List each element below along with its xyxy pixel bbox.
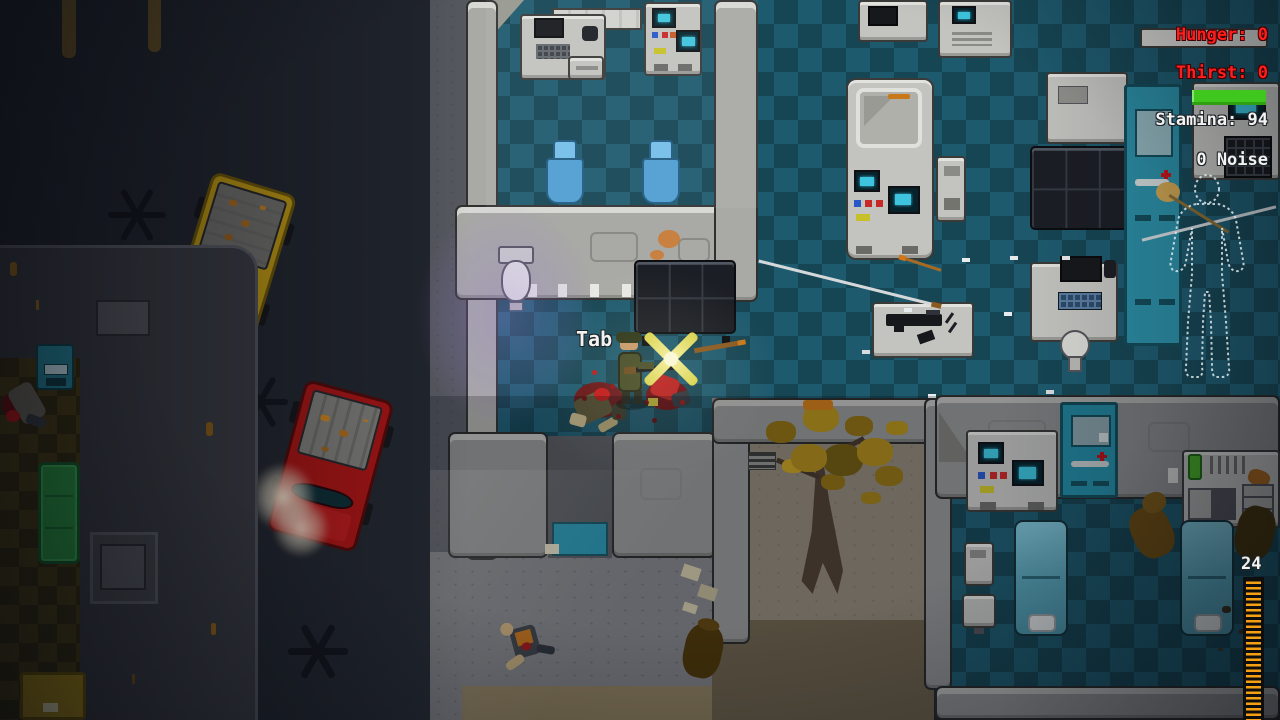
med-feet	[980, 502, 996, 510]
monitor-icon	[1060, 256, 1102, 282]
paper	[43, 703, 58, 712]
ammo-count: 24	[1241, 554, 1261, 574]
console-vent	[654, 64, 668, 71]
orange-item[interactable]	[803, 400, 833, 410]
wall-panel	[640, 468, 682, 500]
noise-label: 0 Noise	[1196, 150, 1268, 170]
green-couch[interactable]	[38, 462, 80, 564]
scanner-screen	[888, 186, 920, 214]
red-cross-icon	[1100, 452, 1104, 461]
caltrop-debris	[288, 616, 348, 686]
doorway[interactable]	[548, 436, 612, 558]
small-device[interactable]	[936, 156, 966, 222]
top-machine[interactable]	[938, 0, 1012, 58]
door-vent	[1071, 481, 1087, 486]
game-viewport[interactable]: Hunger: 0 Thirst: 0 Stamina: 94 0 Noise …	[0, 0, 1280, 720]
wall-office-east	[714, 0, 758, 302]
hospital-bed[interactable]	[1180, 520, 1234, 636]
scanner-screen	[854, 170, 880, 192]
toilet[interactable]	[496, 246, 538, 314]
bullet-casings	[962, 258, 970, 262]
office-chair[interactable]	[1058, 330, 1092, 374]
workbench[interactable]	[872, 302, 974, 358]
keyboard	[1058, 292, 1102, 310]
tall-machine[interactable]	[1046, 72, 1128, 144]
iv-trolley[interactable]	[960, 542, 1000, 634]
machine-screen	[952, 6, 976, 24]
monitor-icon	[868, 6, 898, 26]
machine-panel	[1058, 86, 1088, 104]
med-buttons	[978, 472, 985, 479]
med-screen	[1012, 460, 1044, 486]
teal-door[interactable]	[552, 522, 608, 556]
ammo-bar	[1243, 577, 1264, 720]
corpse[interactable]	[0, 380, 52, 442]
yellow-table[interactable]	[20, 672, 86, 720]
player-legs	[622, 390, 630, 404]
caltrop-debris	[108, 182, 166, 248]
green-bottle[interactable]	[1188, 454, 1202, 480]
thirst-label: Thirst: 0	[1176, 63, 1268, 83]
bed-pillow	[1028, 614, 1056, 632]
fridge-vent	[1135, 215, 1151, 221]
wall-medroom-south	[935, 686, 1280, 720]
tire-streak	[62, 0, 76, 58]
tree-foliage	[791, 444, 827, 472]
wall-mid-south-left	[448, 432, 548, 558]
tree	[745, 398, 935, 628]
cabinet-doors	[1188, 488, 1236, 520]
scanner-machine[interactable]	[846, 78, 934, 260]
tire-streak	[148, 0, 161, 52]
keyboard	[536, 44, 570, 59]
scanner-feet	[856, 246, 872, 254]
scanner-window	[856, 88, 922, 148]
baseboard-mark	[1168, 468, 1178, 483]
scanner-label	[856, 214, 870, 221]
hospital-bed[interactable]	[1014, 520, 1068, 636]
player-shadow	[616, 398, 648, 410]
key-prompt: Tab	[576, 327, 612, 351]
console-buttons	[652, 32, 658, 38]
wall-panel	[1148, 422, 1190, 452]
hunger-label: Hunger: 0	[1176, 25, 1268, 45]
desk-item	[1104, 260, 1116, 278]
paper[interactable]	[545, 544, 559, 554]
console-label	[654, 48, 666, 54]
lab-console[interactable]	[644, 2, 702, 76]
floor-debris	[1222, 606, 1231, 613]
med-label	[980, 486, 994, 493]
top-desk[interactable]	[858, 0, 928, 42]
tool-marks	[945, 312, 954, 324]
microscope	[582, 26, 598, 41]
tree-trunk	[797, 464, 843, 594]
machine-vent	[952, 32, 992, 46]
dark-couch[interactable]	[1030, 146, 1134, 230]
console-screen	[652, 8, 676, 28]
blood-specks	[592, 370, 597, 375]
exhaust-smoke	[272, 498, 330, 558]
console-screen	[676, 30, 700, 52]
door-handle	[1071, 461, 1109, 467]
monitor-icon	[534, 18, 564, 38]
window-ledge	[96, 300, 150, 336]
desk-cabinet[interactable]	[568, 56, 604, 80]
pistol-item[interactable]	[917, 330, 935, 345]
med-machine[interactable]	[966, 430, 1058, 512]
arcade-screen	[44, 364, 68, 375]
stamina-label: Stamina: 94	[1155, 110, 1268, 130]
stamina-bar	[1192, 90, 1266, 105]
door-window	[1071, 415, 1111, 447]
med-screen	[978, 442, 1004, 464]
body-outline	[1152, 172, 1272, 384]
blue-chair[interactable]	[642, 140, 680, 204]
muzzle-flash	[638, 322, 704, 396]
counter-clutter	[1210, 456, 1250, 474]
wall-panel	[590, 232, 638, 262]
rust-stain	[10, 262, 17, 276]
scanner-buttons	[854, 200, 861, 207]
rifle-item[interactable]	[886, 314, 942, 326]
blue-chair[interactable]	[546, 140, 584, 204]
window-ledge	[100, 544, 146, 590]
sand-ground	[462, 686, 716, 720]
med-cabinet-door[interactable]	[1060, 402, 1118, 498]
bed-pillow	[1194, 614, 1222, 632]
